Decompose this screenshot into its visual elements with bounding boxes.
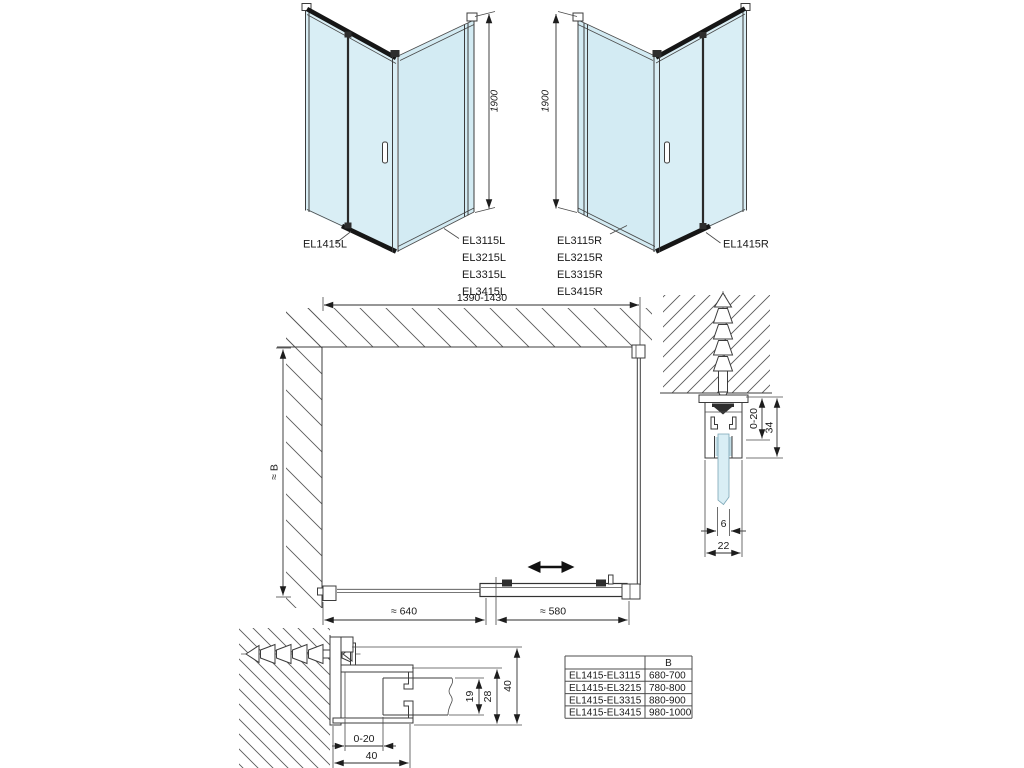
right-height-dim-label: 1900	[541, 89, 552, 112]
profile-top-wall	[341, 665, 413, 672]
profile-height-dim-label: 34	[764, 422, 776, 434]
wall-profile-top-cap	[467, 13, 477, 21]
right-door-model-label: EL1415R	[723, 239, 769, 251]
left-panel-model-label: EL3115L	[462, 235, 505, 247]
dimension-table: B EL1415-EL3115 680-700 EL1415-EL3215 78…	[565, 656, 692, 719]
wall-profile-plan	[323, 586, 336, 601]
table-cell-combo: EL1415-EL3315	[569, 695, 642, 706]
wall-hatch	[663, 295, 770, 393]
plan-depth-dim-label: ≈ B	[269, 464, 281, 480]
right-panel-model-label: EL3415R	[557, 286, 603, 298]
door-handle	[383, 142, 388, 163]
adjust-dim-label: 0-20	[353, 733, 374, 745]
plan-fixed-segment-dim-label: ≈ 640	[391, 606, 417, 618]
glass-package-dim-label: 19	[464, 691, 476, 703]
table-cell-combo: EL1415-EL3215	[569, 683, 642, 694]
left-height-dim-label: 1900	[490, 89, 501, 112]
table-header-b: B	[665, 658, 672, 669]
right-side-panel-glass	[578, 20, 655, 251]
table-cell-b: 780-800	[649, 683, 686, 694]
right-enclosure-view: 1900 EL3115R EL3215R EL3315R EL3415R EL1…	[541, 4, 769, 299]
door-handle	[665, 142, 670, 163]
left-enclosure-view: 1900 EL1415L EL3115L EL3215L EL3315L EL3…	[302, 4, 506, 299]
slide-direction-arrow	[528, 561, 575, 573]
wall-profile-top-cap	[573, 13, 583, 21]
screw-tab	[341, 637, 353, 652]
profile-width-dim-label: 22	[718, 540, 730, 552]
corner-connector	[653, 50, 662, 57]
plan-width-dim-label: 1390-1430	[457, 292, 507, 304]
corner-connector	[391, 50, 400, 57]
right-panel-model-label: EL3215R	[557, 252, 603, 264]
roller-carriage	[502, 580, 512, 587]
wall-leg	[330, 637, 341, 725]
left-panel-model-label: EL3215L	[462, 252, 506, 264]
glass-break-symbol	[448, 678, 453, 715]
table-cell-b: 680-700	[649, 671, 686, 682]
adjust-dim-label: 0-20	[748, 408, 760, 429]
panel-wall-bracket	[632, 345, 645, 358]
table-cell-b: 880-900	[649, 695, 686, 706]
left-wall-hatch	[286, 308, 322, 608]
profile-depth-dim-label: 40	[502, 680, 514, 692]
wall-profile-section-detail: 19 28 40 0-20 40	[239, 628, 522, 768]
left-door-model-label: EL1415L	[303, 239, 347, 251]
plan-view: 1390-1430 ≈ B	[269, 292, 653, 625]
inner-dim-label: 28	[482, 691, 494, 703]
left-panel-model-label: EL3315L	[462, 269, 506, 281]
glass-pane-section	[718, 434, 729, 505]
right-panel-model-label: EL3115R	[557, 235, 602, 247]
door-stopper-pin	[609, 575, 614, 584]
right-panel-model-label: EL3315R	[557, 269, 603, 281]
profile-width-dim-label: 40	[366, 750, 378, 762]
anchor-screw-shaft	[719, 371, 728, 392]
roller-carriage	[596, 580, 606, 587]
table-cell-b: 980-1000	[649, 708, 692, 719]
technical-drawing-canvas: 1900 EL1415L EL3115L EL3215L EL3315L EL3…	[0, 0, 1024, 768]
plan-door-segment-dim-label: ≈ 580	[540, 606, 566, 618]
top-wall-hatch	[286, 308, 652, 347]
top-rail-section-detail: 0-20 34 6 22	[660, 291, 783, 557]
shower-door-technical-drawing-page: 1900 EL1415L EL3115L EL3215L EL3315L EL3…	[0, 0, 1024, 768]
left-side-panel-glass	[398, 20, 474, 251]
profile-top-plate	[699, 395, 748, 403]
glass-thickness-dim-label: 6	[721, 518, 727, 530]
table-cell-combo: EL1415-EL3115	[569, 671, 641, 682]
corner-end-cap	[622, 584, 640, 599]
table-cell-combo: EL1415-EL3415	[569, 708, 642, 719]
